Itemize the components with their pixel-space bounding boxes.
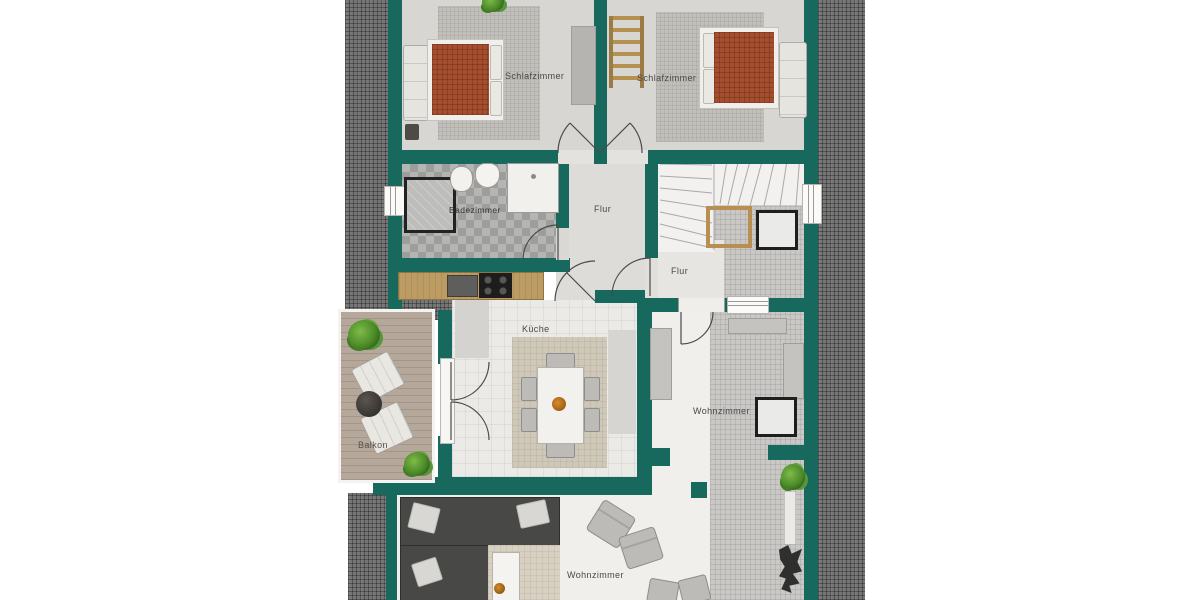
kitchen-wall-shadow [455, 300, 489, 358]
dining-chair [546, 443, 575, 458]
door-opening-bedroom-right [607, 150, 648, 164]
wall-pillar [691, 482, 707, 498]
couch [783, 343, 804, 399]
dining-chair [584, 377, 600, 401]
room-hall-main [556, 150, 650, 312]
bed [699, 27, 779, 109]
wall-stub-arm [652, 448, 670, 466]
floorplan: Schlafzimmer Schlafzimmer Badezimmer Flu… [0, 0, 1200, 600]
wall-hall2-bottom-c [765, 298, 818, 312]
side-table [405, 124, 419, 140]
armchair [646, 578, 680, 600]
bed-mattress [714, 32, 774, 103]
washbasin [450, 166, 473, 192]
floor-runner [784, 492, 796, 544]
shelf [728, 318, 787, 334]
balcony-round-table [356, 391, 382, 417]
kitchen-sink [447, 275, 478, 297]
room-label-bedroom-right: Schlafzimmer [637, 73, 696, 83]
door-opening-bathroom [556, 228, 569, 260]
stair-opening-frame [706, 206, 752, 248]
stair-landing-table [756, 210, 798, 250]
wall-bedrooms-bottom-right [648, 150, 804, 164]
sofa [779, 42, 807, 118]
balcony-plant-icon [348, 320, 380, 350]
wall-bathroom-bottom [388, 258, 570, 272]
table-flower [494, 583, 505, 594]
dining-chair [546, 353, 575, 368]
bed-pillow [490, 81, 502, 116]
bed-mattress [432, 44, 489, 115]
table-centerpiece [552, 397, 566, 411]
wardrobe [571, 26, 596, 105]
window-stairwell [802, 184, 822, 224]
bathtub-drain [531, 174, 536, 179]
wall-bedrooms-bottom-left [388, 150, 558, 164]
door-opening-hall2-living [678, 298, 725, 312]
bed-pillow [490, 45, 502, 80]
room-label-bedroom-left: Schlafzimmer [505, 71, 564, 81]
dining-chair [584, 408, 600, 432]
wall-kitchen-left-top [438, 310, 452, 364]
room-label-bathroom: Badezimmer [449, 205, 501, 215]
room-label-balcony: Balkon [358, 440, 388, 450]
living-right-rug-strip [608, 330, 636, 434]
door-opening-hall1-hall2 [645, 258, 658, 298]
window-hall-second [727, 296, 769, 314]
toilet [475, 163, 500, 188]
wall-stair-left [645, 152, 658, 260]
sideboard [650, 328, 672, 400]
room-label-kitchen: Küche [522, 324, 550, 334]
room-label-living-right: Wohnzimmer [693, 406, 750, 416]
dining-chair [521, 408, 537, 432]
bed [427, 39, 504, 121]
stove [479, 273, 512, 298]
wall-hall2-bottom-a [650, 298, 678, 312]
tv-board [755, 397, 797, 437]
roof-hatch-right [818, 0, 865, 600]
room-label-living-bottom: Wohnzimmer [567, 570, 624, 580]
wall-stub-right [768, 445, 818, 460]
window-bathroom [384, 186, 406, 216]
room-label-hall-second: Flur [671, 266, 688, 276]
balcony-door-frame [440, 358, 455, 444]
balcony-plant-icon [404, 452, 430, 476]
dining-chair [521, 377, 537, 401]
door-opening-bedroom-left [558, 150, 594, 164]
kitchen-counter [398, 272, 544, 300]
terrace-plant-icon [781, 464, 805, 490]
wall-left-bottom [386, 493, 397, 600]
bathtub [507, 163, 559, 213]
room-label-hall-main: Flur [594, 204, 611, 214]
